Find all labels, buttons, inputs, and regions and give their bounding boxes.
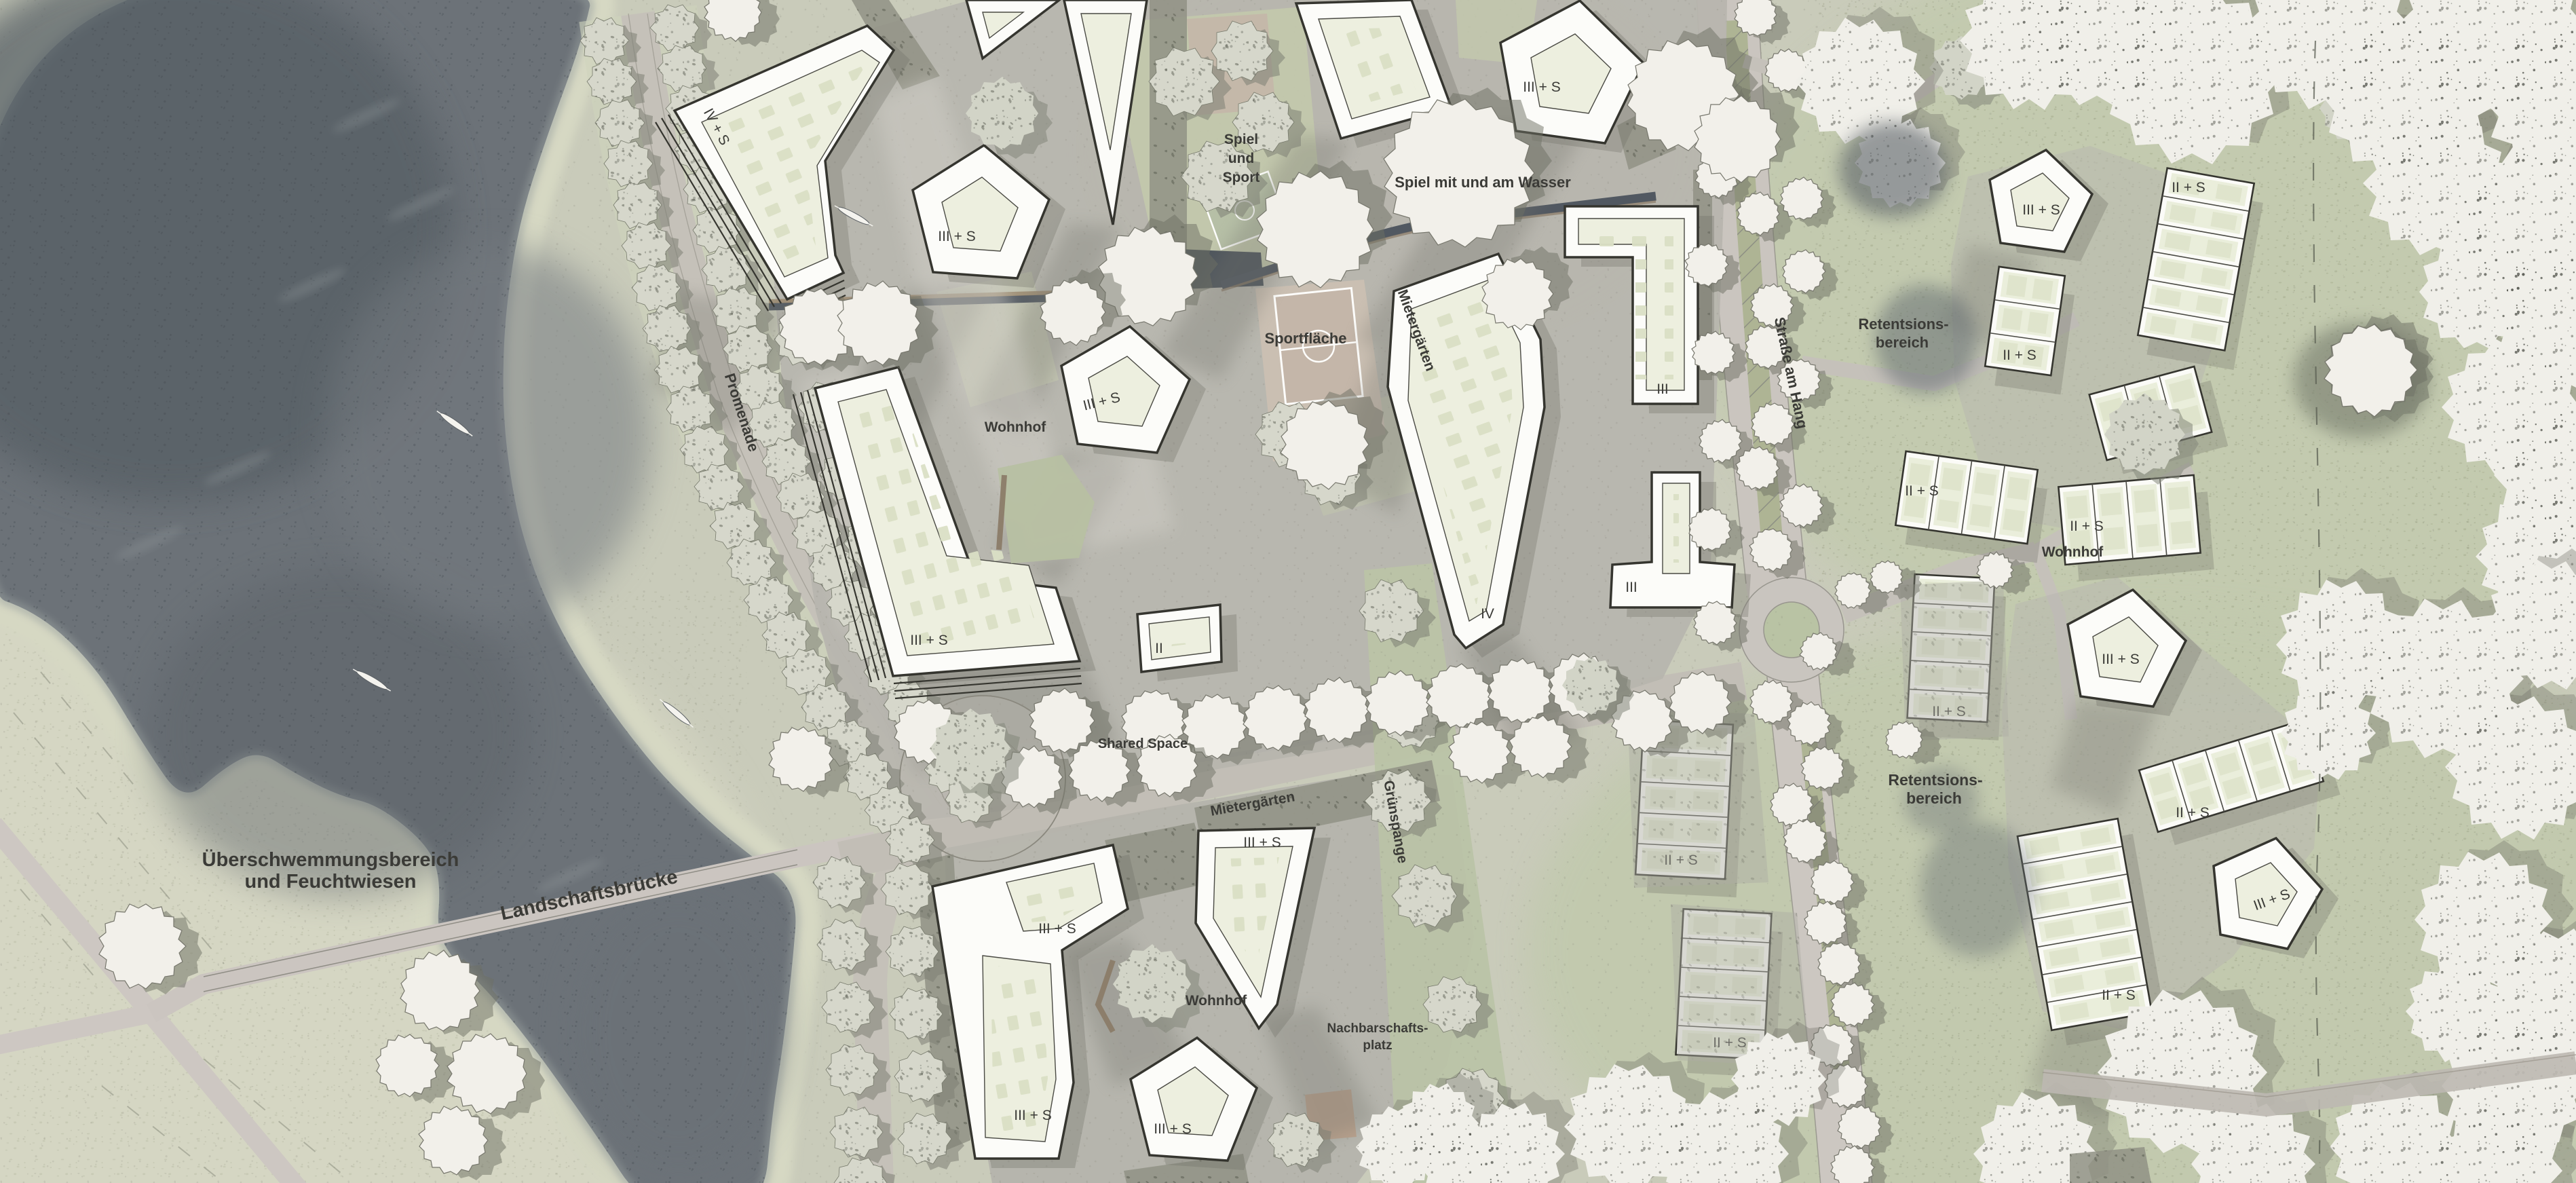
svg-text:Sportfläche: Sportfläche xyxy=(1264,330,1346,347)
svg-text:III + S: III + S xyxy=(1014,1108,1051,1123)
svg-text:II + S: II + S xyxy=(2176,805,2210,821)
svg-text:II + S: II + S xyxy=(2003,348,2037,363)
svg-text:Wohnhof: Wohnhof xyxy=(1186,993,1248,1009)
svg-text:II + S: II + S xyxy=(1905,483,1939,499)
svg-text:II + S: II + S xyxy=(2070,519,2104,534)
svg-text:Überschwemmungsbereich: Überschwemmungsbereich xyxy=(202,848,459,871)
svg-text:III + S: III + S xyxy=(1154,1121,1191,1137)
svg-text:und Feuchtwiesen: und Feuchtwiesen xyxy=(245,871,417,893)
svg-text:III + S: III + S xyxy=(938,229,975,244)
svg-text:Retentsions-: Retentsions- xyxy=(1888,771,1982,789)
svg-text:III + S: III + S xyxy=(2102,652,2139,667)
svg-text:Spiel: Spiel xyxy=(1224,132,1258,147)
svg-text:bereich: bereich xyxy=(1876,334,1929,351)
svg-text:Sport: Sport xyxy=(1223,170,1260,185)
svg-text:Nachbarschafts-: Nachbarschafts- xyxy=(1327,1021,1428,1036)
svg-text:Spiel mit und am Wasser: Spiel mit und am Wasser xyxy=(1395,174,1571,191)
svg-text:Shared Space: Shared Space xyxy=(1098,736,1188,751)
svg-text:III: III xyxy=(1625,580,1637,595)
svg-text:III + S: III + S xyxy=(1523,79,1560,95)
svg-text:II + S: II + S xyxy=(2102,988,2136,1003)
svg-text:Wohnhof: Wohnhof xyxy=(985,419,1047,435)
svg-text:Retentsions-: Retentsions- xyxy=(1858,316,1948,333)
svg-text:IV: IV xyxy=(1481,606,1494,622)
svg-text:III: III xyxy=(1656,381,1669,397)
svg-text:und: und xyxy=(1228,151,1254,166)
svg-text:III + S: III + S xyxy=(2022,202,2060,218)
svg-text:bereich: bereich xyxy=(1906,789,1962,807)
svg-text:Wohnhof: Wohnhof xyxy=(2042,544,2104,560)
svg-text:platz: platz xyxy=(1363,1038,1392,1053)
svg-text:III + S: III + S xyxy=(1038,921,1076,937)
svg-text:II + S: II + S xyxy=(2172,180,2205,195)
svg-text:III + S: III + S xyxy=(1243,835,1281,850)
svg-text:II: II xyxy=(1155,641,1163,656)
svg-text:III + S: III + S xyxy=(910,633,947,648)
